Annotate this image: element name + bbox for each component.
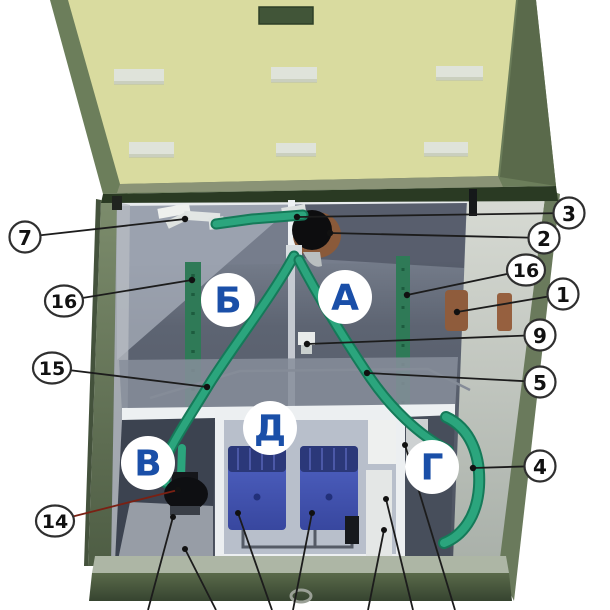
leader-dot — [381, 527, 387, 533]
callout-number-16: 16 — [513, 260, 539, 282]
chamber-letter-Д: Д — [254, 409, 286, 450]
leader-dot — [383, 496, 389, 502]
hinge-pin-right — [469, 189, 477, 216]
leader-dot — [170, 514, 176, 520]
chamber-letter-Г: Г — [421, 448, 444, 489]
callout-target-dot-9 — [304, 341, 310, 347]
callout-number-9: 9 — [533, 324, 547, 348]
callout-number-1: 1 — [556, 283, 570, 307]
callout-number-4: 4 — [533, 455, 547, 479]
hinge-pin-left — [112, 196, 122, 210]
callout-number-15: 15 — [39, 358, 65, 380]
callout-target-dot-14 — [175, 487, 181, 493]
callout-target-dot-5 — [364, 370, 370, 376]
compressor-left — [228, 446, 286, 530]
lid-handle — [259, 7, 313, 24]
lid-open — [50, 0, 556, 194]
diagram-canvas: БАВДГ716151432161954 — [0, 0, 610, 610]
callout-target-dot-16 — [189, 277, 195, 283]
callout-target-dot-4 — [470, 465, 476, 471]
callout-target-dot-3 — [294, 214, 300, 220]
callout-target-dot-7 — [182, 216, 188, 222]
callout-target-dot-15 — [204, 384, 210, 390]
leader-dot — [402, 442, 408, 448]
leader-dot — [309, 510, 315, 516]
callout-number-2: 2 — [537, 227, 551, 251]
callout-target-dot-1 — [454, 309, 460, 315]
callout-number-7: 7 — [18, 226, 32, 250]
leader-dot — [182, 546, 188, 552]
callout-number-16: 16 — [51, 291, 77, 313]
leader-dot — [235, 510, 241, 516]
shelf-floor — [119, 357, 458, 412]
callout-target-dot-16 — [404, 292, 410, 298]
elbow-fitting — [345, 516, 359, 544]
chamber-letter-А: А — [331, 278, 359, 319]
chamber-letter-Б: Б — [214, 281, 241, 322]
callout-number-5: 5 — [533, 371, 547, 395]
chamber-letter-В: В — [134, 444, 161, 485]
control-panel-lower — [366, 470, 392, 556]
control-panel-upper — [368, 420, 396, 464]
septic-tank-diagram: БАВДГ716151432161954 — [0, 0, 610, 610]
callout-number-3: 3 — [562, 202, 576, 226]
callout-target-dot-2 — [327, 230, 333, 236]
callout-number-14: 14 — [42, 511, 68, 533]
